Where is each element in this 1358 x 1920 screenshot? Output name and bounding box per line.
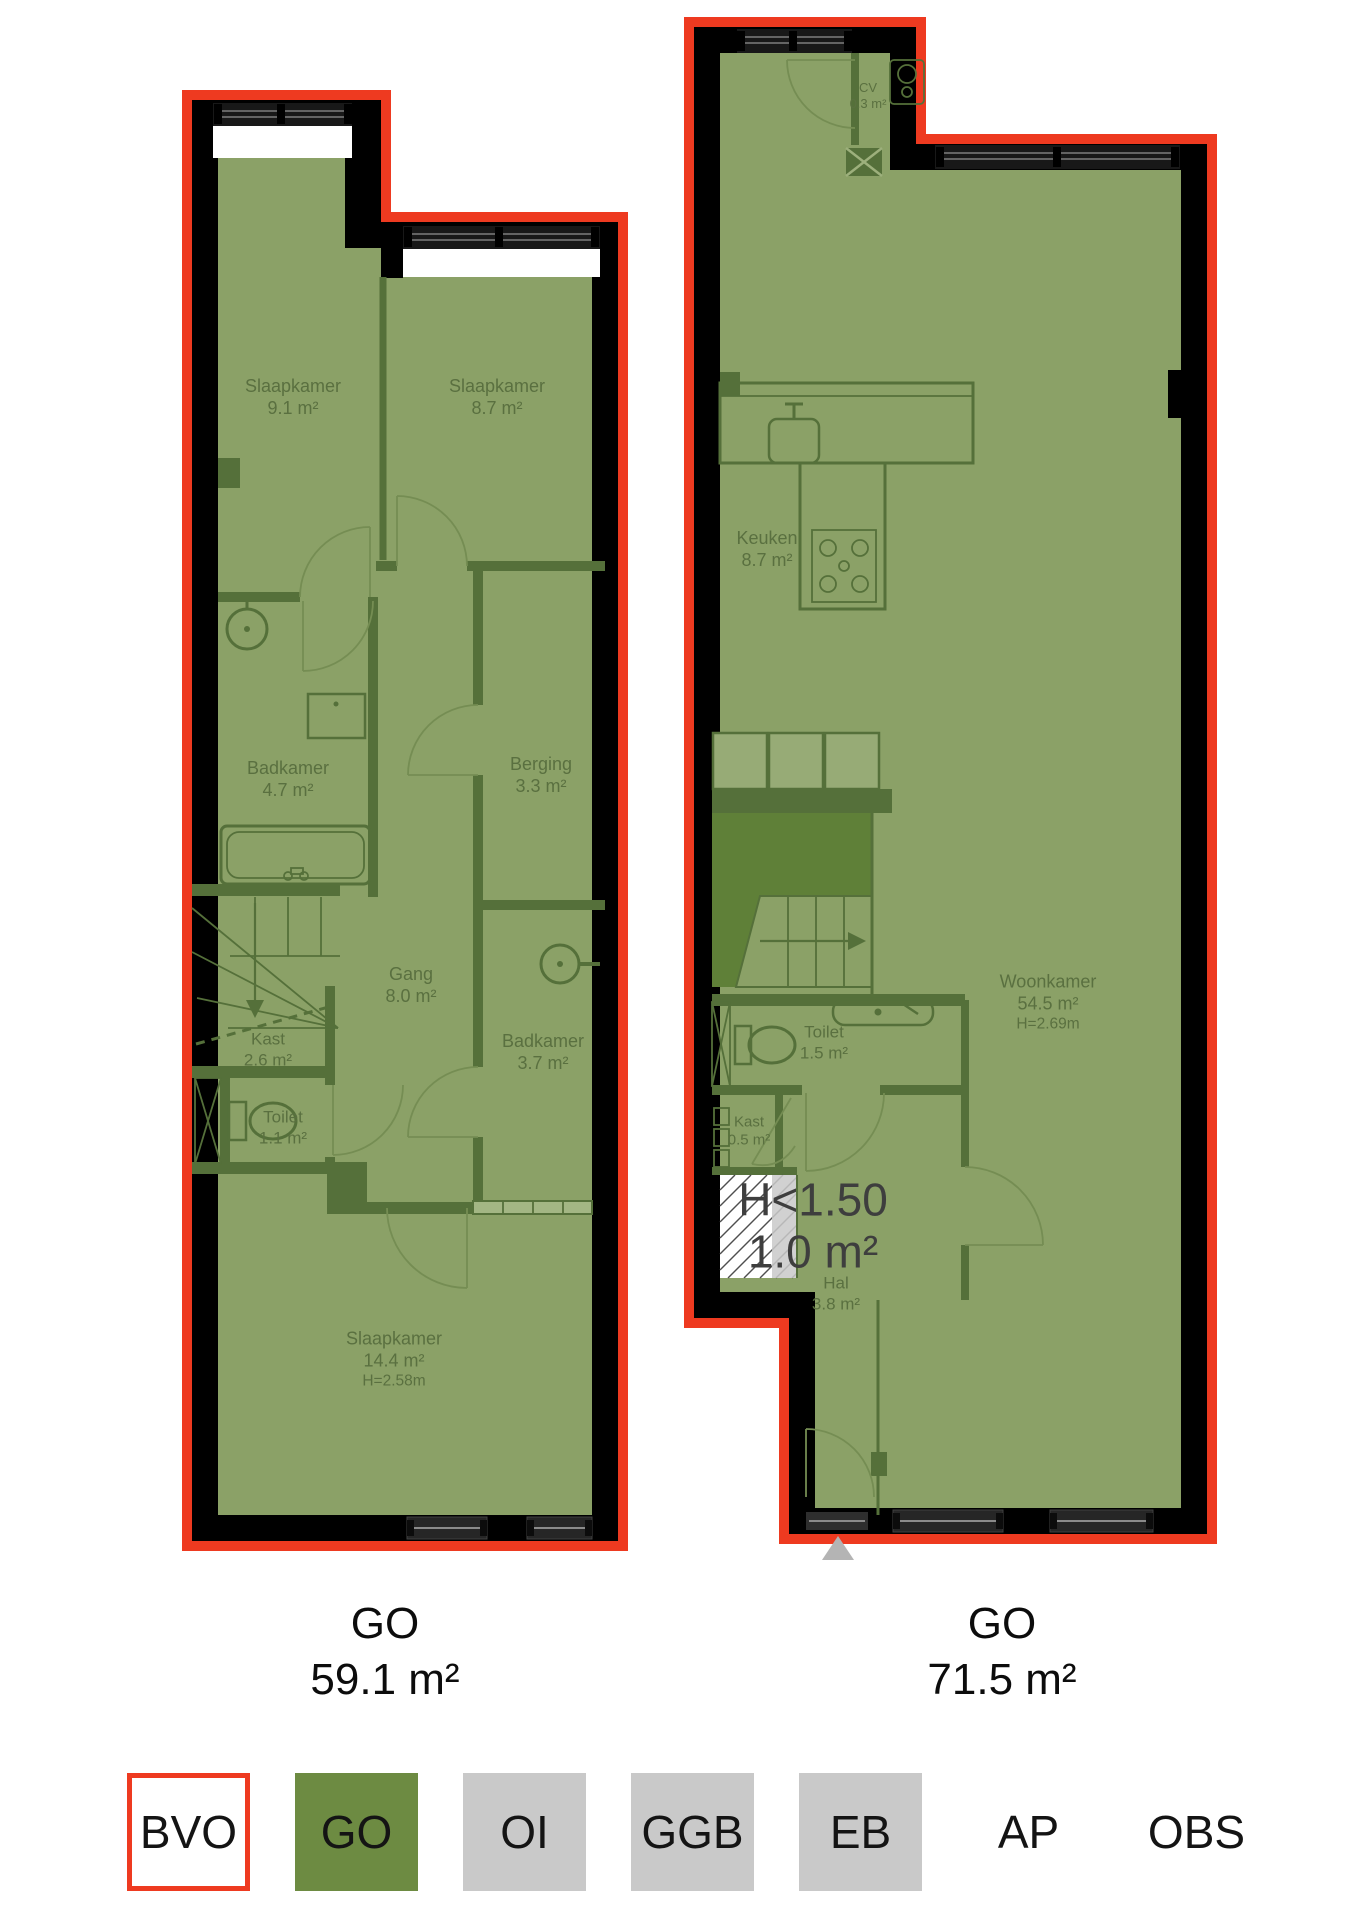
- legend-swatch-ggb: GGB: [631, 1773, 754, 1891]
- room-name: Slaapkamer: [245, 376, 341, 398]
- room-area: 2.6 m²: [244, 1050, 292, 1071]
- low-height-area: 1.0 m²: [738, 1226, 888, 1278]
- room-label-kast-1: Kast 2.6 m²: [244, 1029, 292, 1070]
- legend-label: GO: [321, 1805, 393, 1859]
- room-label-toilet-1: Toilet 1.1 m²: [259, 1107, 307, 1148]
- legend-item-ggb: GGB: [631, 1773, 754, 1891]
- legend-item-bvo: BVO: [127, 1773, 250, 1891]
- legend-item-go: GO: [295, 1773, 418, 1891]
- room-label-badkamer-1: Badkamer 4.7 m²: [247, 758, 329, 802]
- low-height-label: H<1.50: [738, 1174, 888, 1226]
- floorplan-page: Slaapkamer 9.1 m² Slaapkamer 8.7 m² Badk…: [0, 0, 1358, 1920]
- window: [403, 226, 600, 277]
- floor-plan-upper: [192, 100, 605, 1539]
- room-area: 3.7 m²: [502, 1053, 584, 1075]
- legend-item-ap: AP: [967, 1773, 1090, 1891]
- legend-label: BVO: [140, 1805, 237, 1859]
- wardrobe-cabinets: [712, 733, 892, 813]
- glass-partition: [473, 1201, 592, 1214]
- room-label-slaapkamer-1: Slaapkamer 9.1 m²: [245, 376, 341, 420]
- legend-swatch-oi: OI: [463, 1773, 586, 1891]
- room-name: Slaapkamer: [449, 376, 545, 398]
- room-area: 54.5 m²: [1000, 994, 1097, 1016]
- room-name: Kast: [728, 1114, 771, 1132]
- legend: BVO GO OI GGB EB AP: [0, 1773, 1358, 1891]
- room-area: 4.7 m²: [247, 780, 329, 802]
- room-name: Slaapkamer: [346, 1329, 442, 1351]
- legend-swatch-ap: AP: [967, 1773, 1090, 1891]
- room-name: Woonkamer: [1000, 972, 1097, 994]
- room-area: 8.7 m²: [449, 398, 545, 420]
- room-area: 14.4 m²: [346, 1351, 442, 1373]
- floor-plans-drawing: [0, 0, 1358, 1920]
- plan-type-label: GO: [310, 1596, 459, 1652]
- room-area: 8.7 m²: [736, 550, 797, 572]
- room-area: 0.3 m²: [850, 96, 887, 112]
- legend-swatch-bvo: BVO: [127, 1773, 250, 1891]
- stairs-icon: [736, 896, 872, 987]
- legend-label: EB: [830, 1805, 891, 1859]
- room-area: 3.8 m²: [812, 1294, 860, 1315]
- legend-swatch-obs: OBS: [1135, 1773, 1258, 1891]
- outer-wall: [205, 113, 605, 1528]
- room-label-berging: Berging 3.3 m²: [510, 754, 572, 798]
- window: [213, 103, 352, 158]
- room-name: Keuken: [736, 528, 797, 550]
- plan-area-value: 71.5 m²: [927, 1652, 1076, 1708]
- window: [737, 29, 852, 53]
- room-label-kast-2: Kast 0.5 m²: [728, 1114, 771, 1151]
- plan-area-value: 59.1 m²: [310, 1652, 459, 1708]
- legend-item-oi: OI: [463, 1773, 586, 1891]
- window: [935, 145, 1180, 169]
- wall-nub: [694, 596, 716, 622]
- legend-label: AP: [998, 1805, 1059, 1859]
- legend-item-obs: OBS: [1135, 1773, 1258, 1891]
- legend-label: GGB: [641, 1805, 743, 1859]
- legend-label: OI: [500, 1805, 549, 1859]
- room-label-slaapkamer-2: Slaapkamer 8.7 m²: [449, 376, 545, 420]
- room-area: 3.3 m²: [510, 776, 572, 798]
- legend-label: OBS: [1148, 1805, 1245, 1859]
- room-label-woonkamer: Woonkamer 54.5 m² H=2.69m: [1000, 972, 1097, 1035]
- plan-type-label: GO: [927, 1596, 1076, 1652]
- room-height: H=2.69m: [1000, 1016, 1097, 1035]
- room-label-gang: Gang 8.0 m²: [385, 964, 436, 1008]
- room-area: 1.1 m²: [259, 1128, 307, 1149]
- floor-plan-ground: [694, 29, 1194, 1532]
- room-name: Badkamer: [247, 758, 329, 780]
- room-area: 8.0 m²: [385, 986, 436, 1008]
- legend-item-eb: EB: [799, 1773, 922, 1891]
- room-name: Toilet: [259, 1107, 307, 1128]
- room-label-toilet-2: Toilet 1.5 m²: [800, 1022, 848, 1063]
- wall-nub: [218, 458, 240, 488]
- low-height-annotation: H<1.50 1.0 m²: [738, 1174, 888, 1277]
- room-height: H=2.58m: [346, 1373, 442, 1392]
- wall-nub: [1168, 370, 1194, 418]
- room-name: Gang: [385, 964, 436, 986]
- room-label-keuken: Keuken 8.7 m²: [736, 528, 797, 572]
- plan-footer-ground: GO 71.5 m²: [927, 1596, 1076, 1709]
- legend-swatch-eb: EB: [799, 1773, 922, 1891]
- room-name: Toilet: [800, 1022, 848, 1043]
- plan-footer-upper: GO 59.1 m²: [310, 1596, 459, 1709]
- room-label-badkamer-2: Badkamer 3.7 m²: [502, 1031, 584, 1075]
- room-area: 1.5 m²: [800, 1043, 848, 1064]
- room-label-cv: CV 0.3 m²: [850, 80, 887, 112]
- room-area: 0.5 m²: [728, 1132, 771, 1150]
- room-label-slaapkamer-3: Slaapkamer 14.4 m² H=2.58m: [346, 1329, 442, 1392]
- room-name: Kast: [244, 1029, 292, 1050]
- room-name: Badkamer: [502, 1031, 584, 1053]
- room-label-hal: Hal 3.8 m²: [812, 1273, 860, 1314]
- room-name: CV: [850, 80, 887, 96]
- room-area: 9.1 m²: [245, 398, 341, 420]
- legend-swatch-go: GO: [295, 1773, 418, 1891]
- window: [806, 1510, 1153, 1532]
- room-name: Berging: [510, 754, 572, 776]
